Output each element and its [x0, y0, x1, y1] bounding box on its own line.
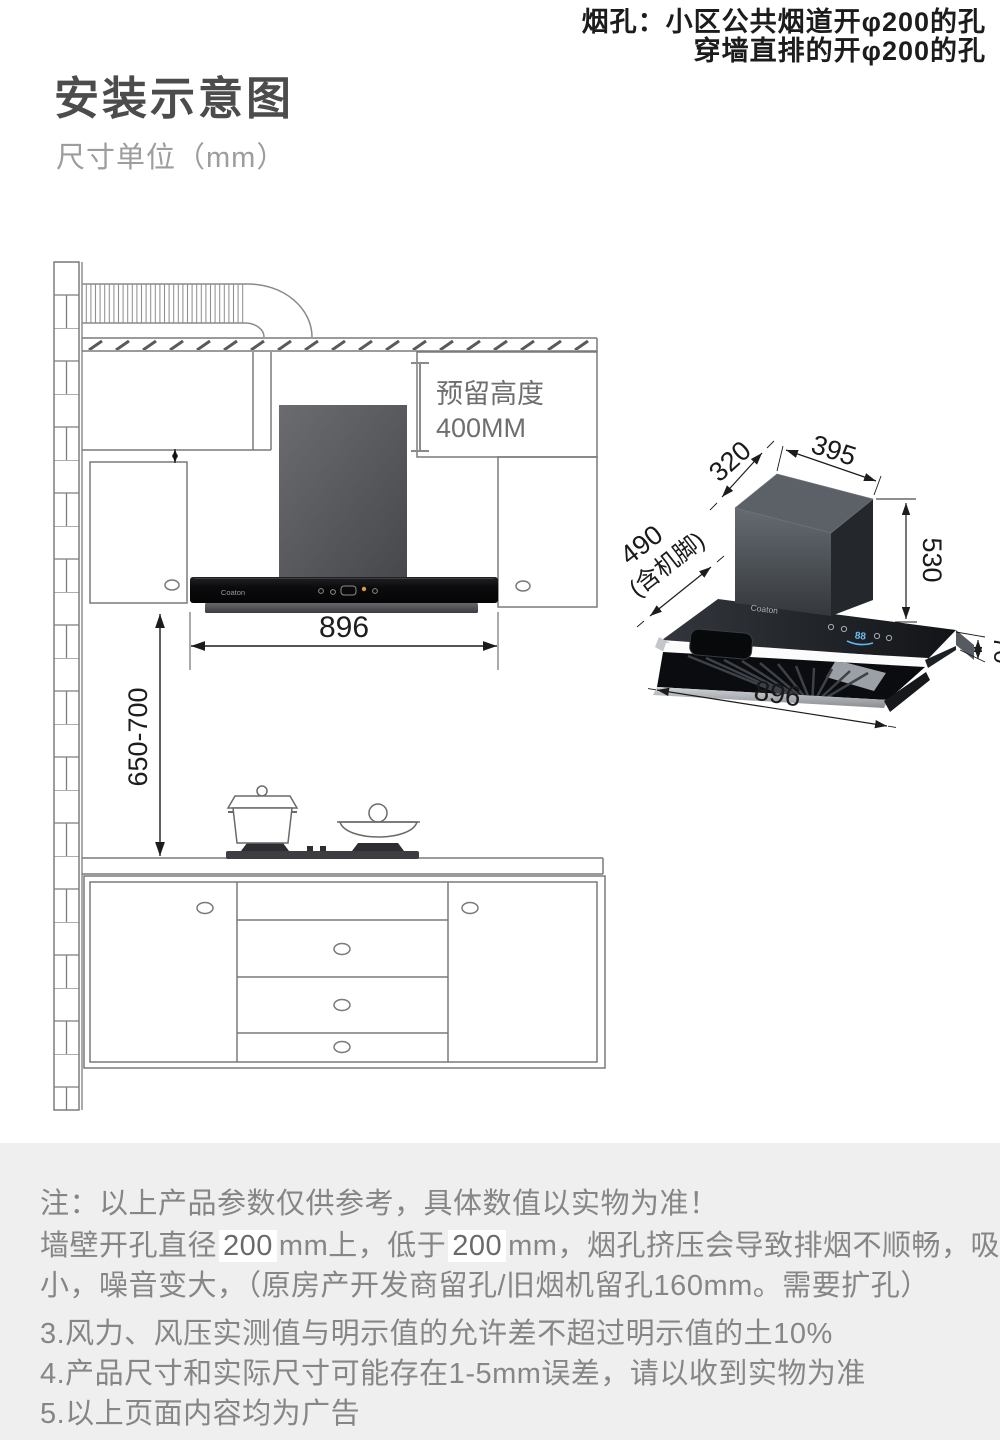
notes-panel: 注：以上产品参数仅供参考，具体数值以实物为准！ 墙壁开孔直径200mm上，低于2…: [0, 1143, 1000, 1440]
note-line-2: 墙壁开孔直径200mm上，低于200mm，烟孔挤压会导致排烟不顺畅，吸力变: [40, 1222, 1000, 1264]
dimension-install-height: 650-700: [123, 614, 160, 856]
note-line-6: 5.以上页面内容均为广告: [40, 1390, 360, 1432]
note-line-1: 注：以上产品参数仅供参考，具体数值以实物为准！: [40, 1180, 719, 1222]
install-height-label: 650-700: [123, 687, 153, 786]
cabinet-handle: [197, 903, 213, 914]
note-line-5: 4.产品尺寸和实际尺寸可能存在1-5mm误差，请以收到实物为准: [40, 1350, 866, 1392]
dim-395: 395: [808, 429, 860, 471]
note-line-2-text: mm上，低于: [279, 1230, 446, 1262]
lower-cabinet: [84, 876, 605, 1068]
hood-chimney-front: [279, 405, 407, 577]
cabinet-handle: [165, 580, 179, 590]
page: { "top_note": { "line1": "烟孔：小区公共烟道开φ200…: [0, 0, 1000, 1440]
upper-cabinet-left: [82, 352, 271, 450]
note-line-3: 小，噪音变大，（原房产开发商留孔/旧烟机留孔160mm。需要扩孔）: [40, 1262, 930, 1304]
dimension-896-front: 896: [190, 611, 498, 670]
upper-cabinet-right: 预留高度 400MM: [411, 352, 597, 457]
drawer-handle: [334, 1000, 350, 1011]
cooktop: [226, 843, 419, 859]
display-value-3d: 88: [854, 630, 867, 642]
burner-left: [241, 843, 289, 851]
dim-896-3d: 896: [752, 675, 803, 713]
dim-320: 320: [703, 435, 757, 487]
brick-wall: [54, 262, 82, 1110]
cabinet-handle: [516, 581, 530, 591]
igniter: [307, 846, 313, 851]
dim-530: 530: [917, 537, 947, 582]
indicator-dot: [362, 587, 366, 591]
exhaust-duct: [82, 284, 312, 337]
dim-70: 70: [988, 636, 1000, 664]
igniter: [320, 846, 326, 851]
side-cabinet-right: [498, 457, 597, 607]
hood-width-label: 896: [319, 611, 369, 644]
cabinet-handle: [462, 903, 478, 914]
ceiling: [82, 338, 597, 352]
drawer-handle: [334, 1042, 350, 1053]
side-cabinet-left: [90, 462, 187, 603]
note-line-2-text: 墙壁开孔直径: [40, 1230, 217, 1262]
note-hole-size-1: 200: [219, 1230, 277, 1262]
note-hole-size-2: 200: [448, 1230, 506, 1262]
reserved-height-label-line2: 400MM: [436, 413, 526, 443]
wok: [337, 804, 420, 837]
burner-right: [352, 843, 404, 851]
hood-3d-filter-panel: [689, 628, 753, 659]
installation-diagram: 预留高度 400MM Coaton 896 650-700: [0, 0, 1000, 1143]
reserved-height-label-line1: 预留高度: [436, 379, 544, 409]
hood-3d-render: Coaton 88: [653, 474, 974, 712]
brand-logo-front: Coaton: [221, 588, 245, 597]
note-line-2-text: mm，烟孔挤压会导致排烟不顺畅，吸力变: [508, 1230, 1000, 1262]
drawer-handle: [334, 944, 350, 955]
cooking-pot: [228, 786, 297, 843]
countertop: [82, 858, 603, 874]
note-line-4: 3.风力、风压实测值与明示值的允许差不超过明示值的土10%: [40, 1310, 833, 1352]
